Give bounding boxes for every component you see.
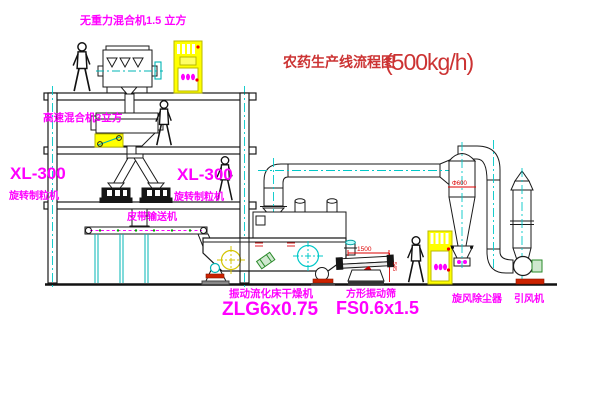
page-title-capacity: (500kg/h)	[385, 49, 474, 75]
dim-screen-length: 1500	[357, 246, 372, 253]
rotary-granulator-right	[140, 183, 172, 203]
mixer-drop-pipe	[125, 94, 134, 113]
label-cyclone: 旋风除尘器	[451, 292, 503, 305]
knob-icon	[443, 264, 447, 270]
knob-icon	[181, 74, 185, 80]
label-granulator-mid-model: XL-300	[177, 165, 233, 184]
label-screen-model: FS0.6x1.5	[336, 298, 419, 318]
dim-cyclone-diameter: Φ600	[452, 181, 467, 187]
label-granulator-left-name: 旋转制粒机	[8, 189, 59, 202]
indicator-light-icon	[195, 78, 198, 81]
fan-motor	[532, 260, 542, 272]
label-granulator-left-model: XL-300	[10, 164, 66, 183]
control-cabinet-2	[428, 231, 452, 284]
indicator-light-icon	[447, 247, 450, 250]
page-title: 农药生产线流程图	[282, 54, 395, 70]
y-chute	[112, 154, 160, 186]
control-cabinet-1	[174, 41, 202, 93]
worker-figure-4	[408, 237, 424, 282]
label-fan: 引风机	[514, 292, 544, 305]
label-high-speed-mixer: 高速混合机3立方	[43, 111, 123, 124]
indicator-light-icon	[447, 268, 450, 271]
cyclone-dust-collector	[448, 142, 476, 268]
conveyor-legs	[95, 234, 148, 283]
worker-figure-1	[73, 43, 90, 91]
knob-icon	[191, 74, 195, 80]
indicator-light-icon	[196, 45, 199, 48]
induced-draft-fan	[514, 257, 545, 285]
label-gravity-free-mixer: 无重力混合机1.5 立方	[79, 13, 186, 27]
rotary-granulator-left	[100, 183, 132, 203]
label-belt-conveyor: 皮带输送机	[126, 210, 177, 223]
gravity-free-mixer	[96, 46, 163, 113]
knob-icon	[434, 264, 438, 270]
label-granulator-mid-name: 旋转制粒机	[173, 190, 224, 203]
label-dryer-model: ZLG6x0.75	[222, 299, 319, 320]
knob-icon	[186, 74, 190, 80]
diagram-canvas: 1500 545 Φ600 农药生产线流程图 (500kg/h) 无重力混合机1…	[0, 0, 600, 403]
process-flow-diagram: 1500 545 Φ600 农药生产线流程图 (500kg/h) 无重力混合机1…	[0, 0, 600, 403]
fluid-bed-dryer	[202, 199, 346, 286]
fan-base	[516, 279, 544, 284]
dim-screen-height: 545	[391, 262, 397, 271]
knob-icon	[439, 264, 443, 270]
